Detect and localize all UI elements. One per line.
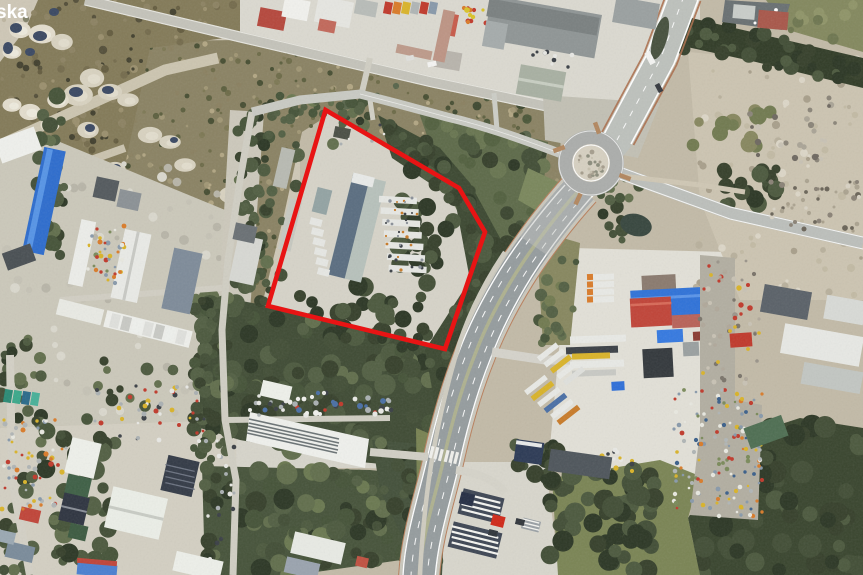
svg-text:ska: ska [0, 2, 28, 23]
